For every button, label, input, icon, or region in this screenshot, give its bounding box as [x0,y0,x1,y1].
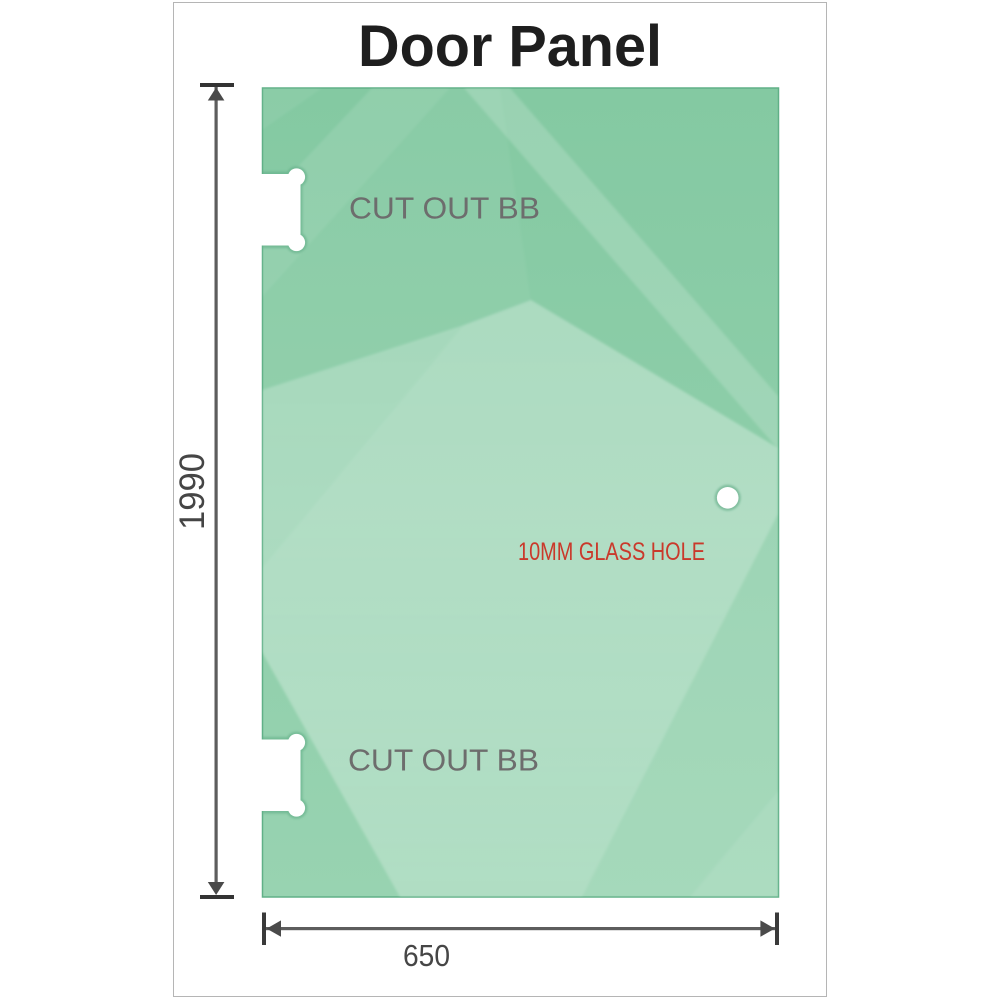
svg-text:1990: 1990 [173,453,212,530]
svg-text:10MM GLASS HOLE: 10MM GLASS HOLE [518,538,705,566]
svg-text:650: 650 [403,938,450,973]
svg-text:CUT OUT BB: CUT OUT BB [349,191,540,226]
svg-text:CUT OUT BB: CUT OUT BB [348,743,539,778]
svg-text:Door Panel: Door Panel [358,14,662,79]
